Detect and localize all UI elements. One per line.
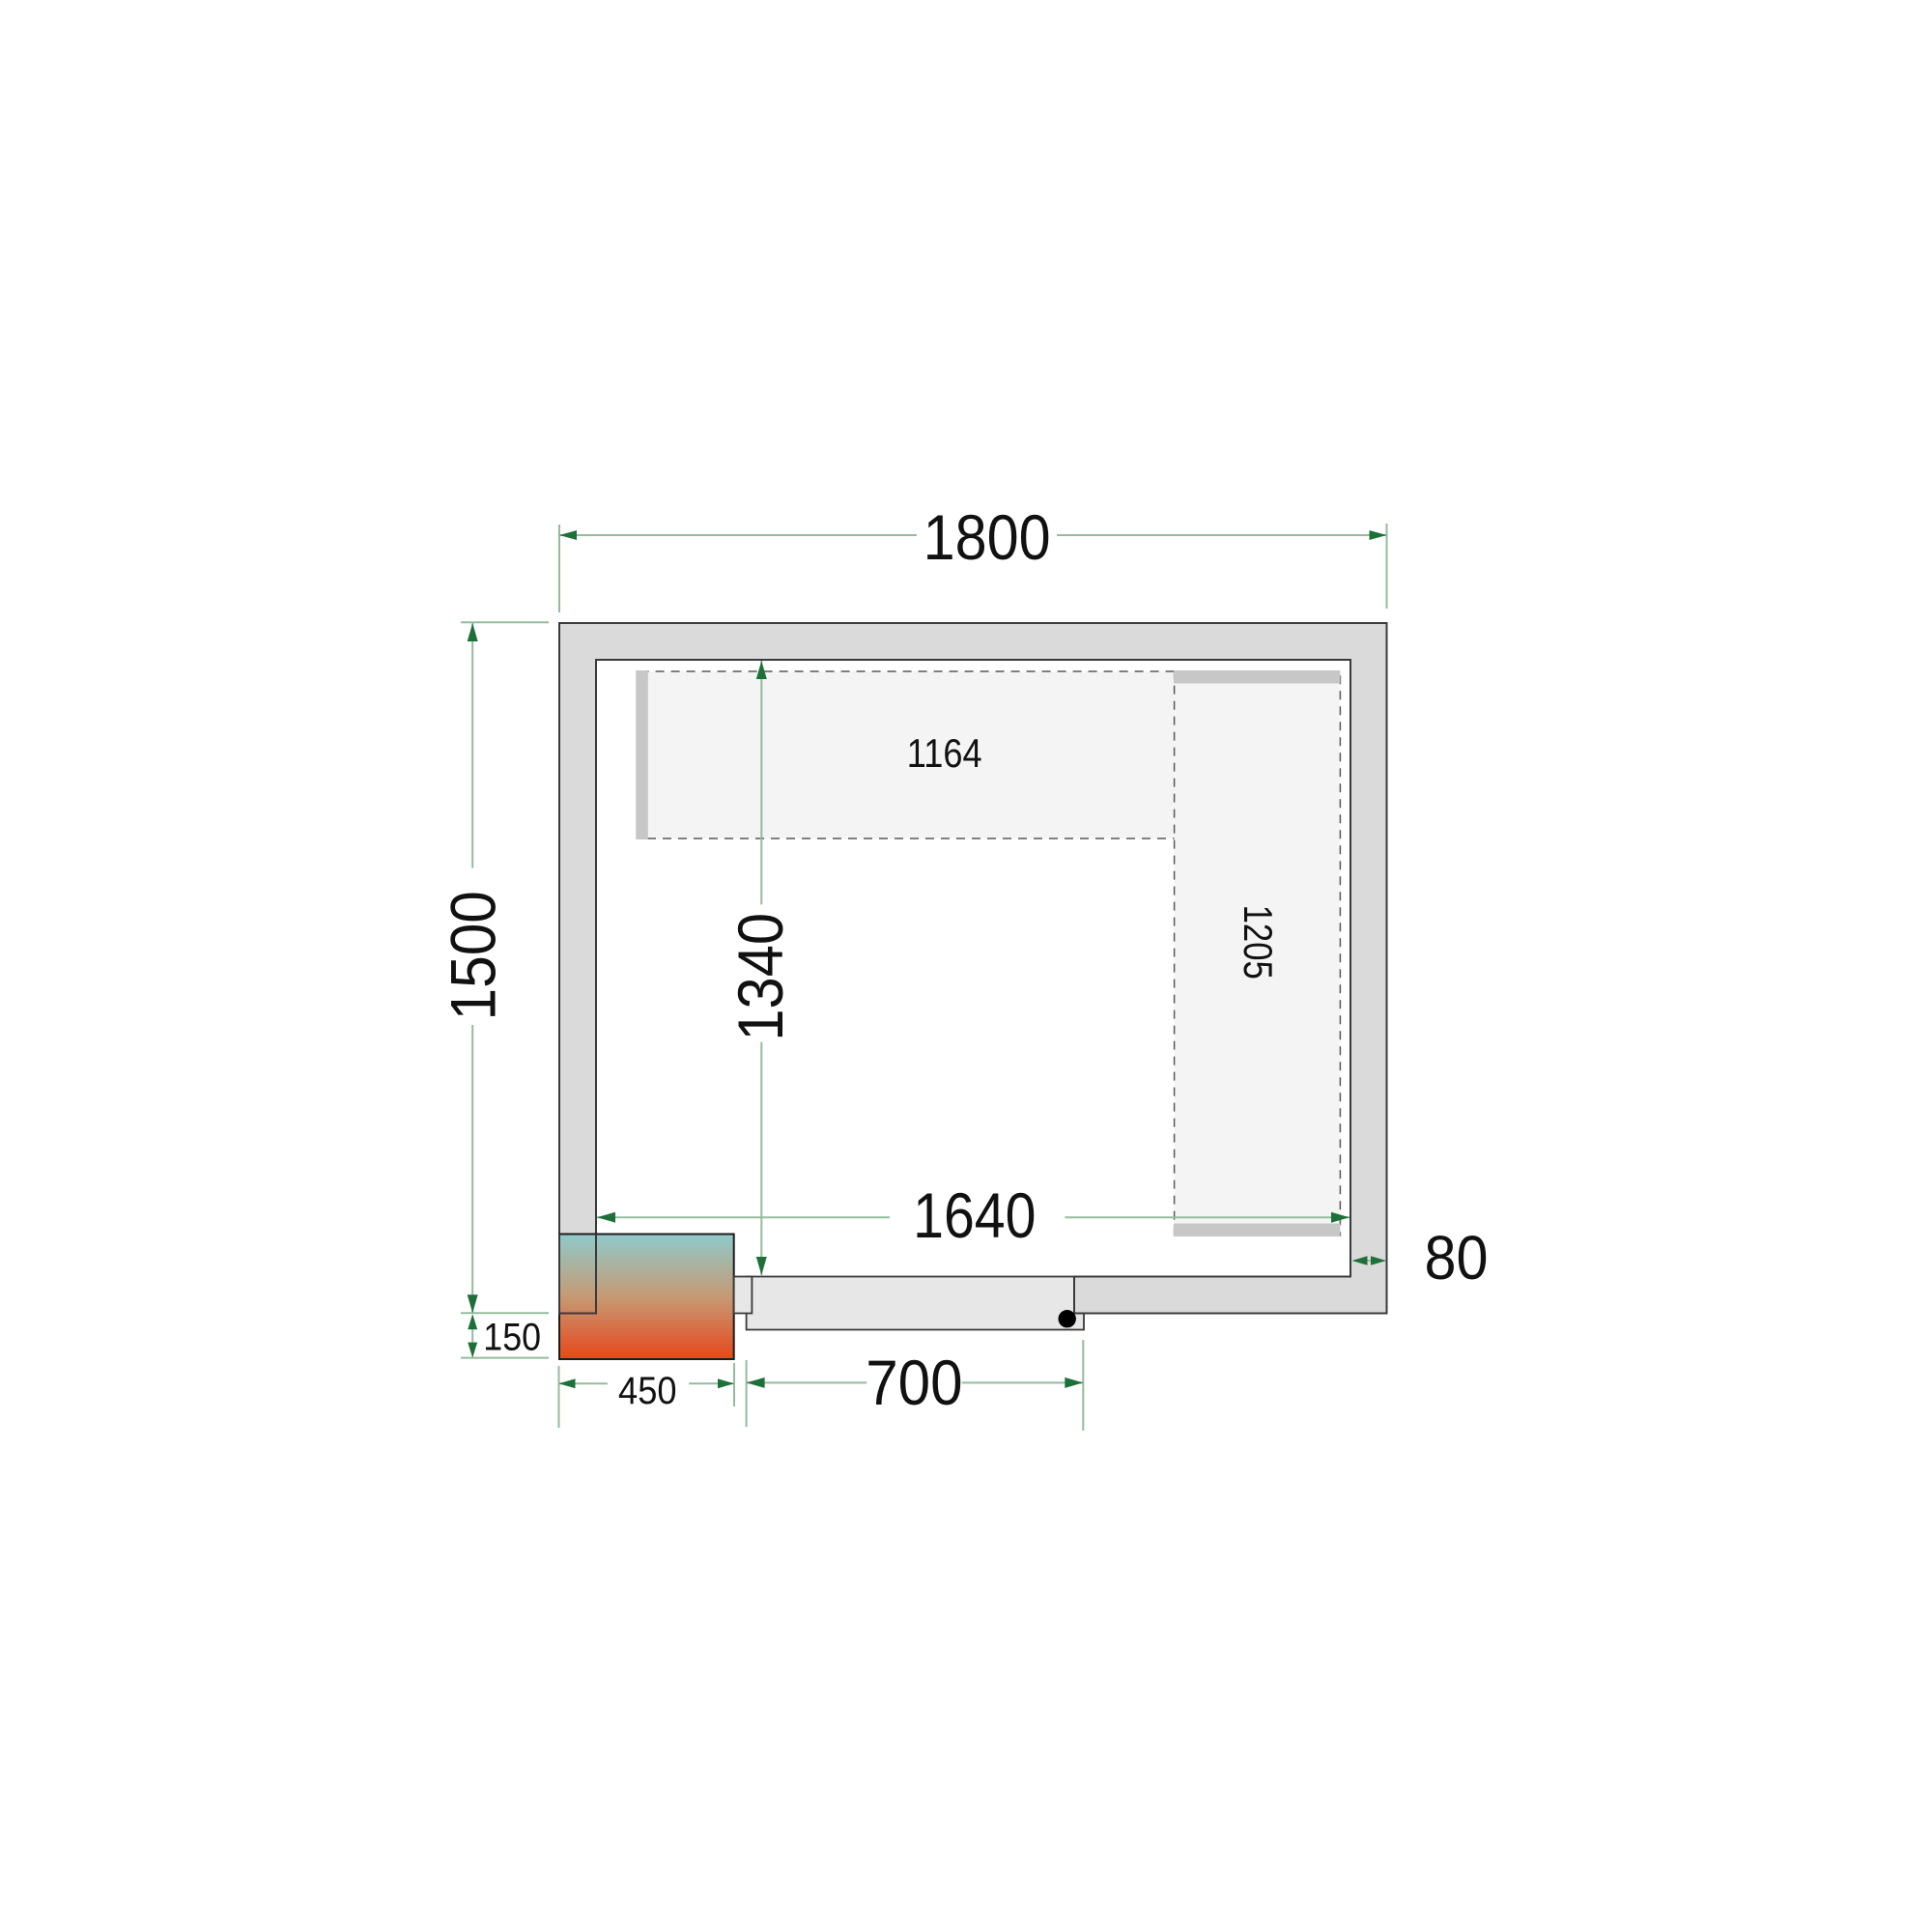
svg-text:1800: 1800 (923, 501, 1051, 573)
svg-text:150: 150 (483, 1317, 541, 1359)
svg-text:1205: 1205 (1236, 905, 1281, 980)
svg-text:700: 700 (866, 1347, 962, 1418)
svg-text:1164: 1164 (907, 730, 982, 776)
svg-text:1500: 1500 (437, 891, 508, 1020)
svg-text:1340: 1340 (724, 913, 796, 1041)
svg-text:1640: 1640 (913, 1179, 1036, 1251)
svg-text:80: 80 (1425, 1223, 1489, 1293)
svg-text:450: 450 (618, 1370, 677, 1412)
